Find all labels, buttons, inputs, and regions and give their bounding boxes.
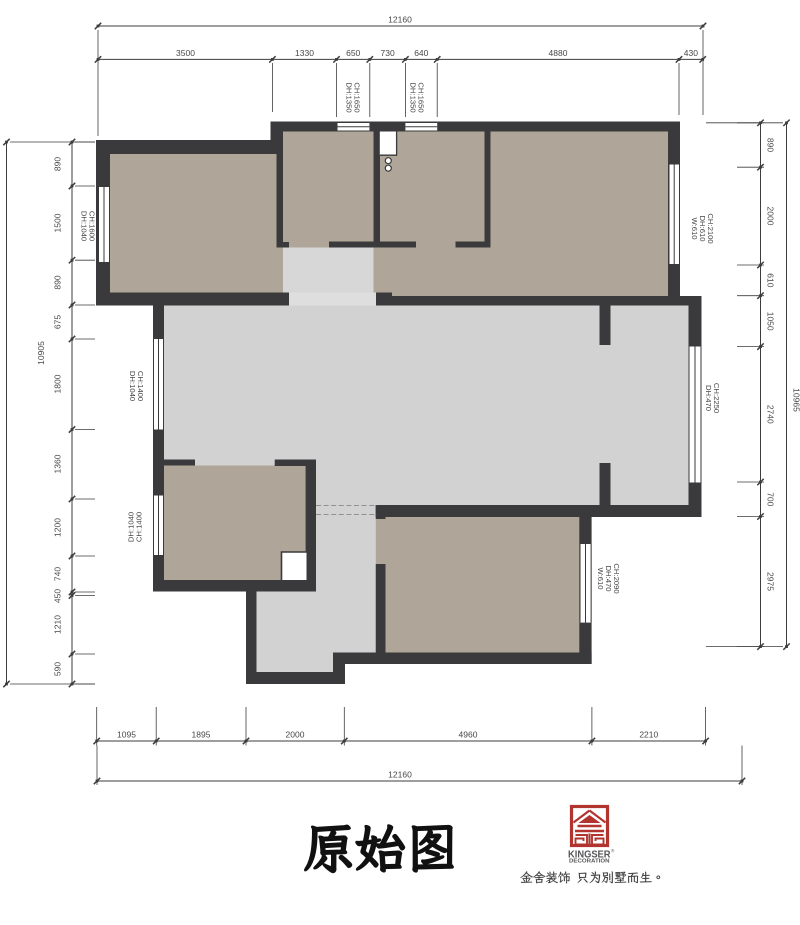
- svg-text:730: 730: [381, 48, 395, 58]
- svg-text:12160: 12160: [388, 15, 412, 25]
- svg-text:CH:1400: CH:1400: [135, 512, 144, 542]
- svg-text:1330: 1330: [295, 48, 314, 58]
- svg-text:740: 740: [53, 567, 63, 581]
- svg-text:890: 890: [53, 275, 63, 289]
- svg-text:610: 610: [766, 273, 776, 287]
- svg-text:10905: 10905: [36, 341, 46, 365]
- svg-text:650: 650: [346, 48, 360, 58]
- svg-text:DH:1040: DH:1040: [79, 211, 88, 241]
- svg-text:W:610: W:610: [690, 217, 699, 239]
- svg-text:700: 700: [766, 492, 776, 506]
- svg-text:DH:1040: DH:1040: [128, 371, 137, 401]
- svg-text:1800: 1800: [53, 374, 63, 393]
- svg-text:2000: 2000: [766, 207, 776, 226]
- svg-text:640: 640: [414, 48, 428, 58]
- svg-text:2000: 2000: [286, 730, 305, 740]
- svg-text:12160: 12160: [388, 770, 412, 780]
- svg-text:450: 450: [53, 589, 63, 603]
- svg-text:DECORATION: DECORATION: [569, 859, 610, 865]
- svg-text:890: 890: [766, 138, 776, 152]
- svg-text:1895: 1895: [192, 730, 211, 740]
- svg-text:675: 675: [53, 315, 63, 329]
- svg-text:DH:470: DH:470: [704, 385, 713, 411]
- svg-text:1200: 1200: [53, 518, 63, 537]
- svg-text:W:610: W:610: [596, 567, 605, 589]
- svg-text:1500: 1500: [53, 213, 63, 232]
- svg-text:590: 590: [53, 662, 63, 676]
- svg-text:DH:1350: DH:1350: [345, 82, 354, 112]
- svg-text:1050: 1050: [766, 312, 776, 331]
- svg-text:1095: 1095: [117, 730, 136, 740]
- svg-text:4880: 4880: [549, 48, 568, 58]
- svg-text:4960: 4960: [459, 730, 478, 740]
- svg-text:430: 430: [684, 48, 698, 58]
- svg-text:890: 890: [53, 157, 63, 171]
- svg-text:DH:1350: DH:1350: [409, 82, 418, 112]
- svg-text:3500: 3500: [176, 48, 195, 58]
- svg-text:2975: 2975: [766, 572, 776, 591]
- svg-text:1210: 1210: [53, 615, 63, 634]
- svg-text:10965: 10965: [792, 388, 800, 412]
- svg-text:1360: 1360: [53, 454, 63, 473]
- svg-text:2210: 2210: [639, 730, 658, 740]
- svg-text:2740: 2740: [766, 405, 776, 424]
